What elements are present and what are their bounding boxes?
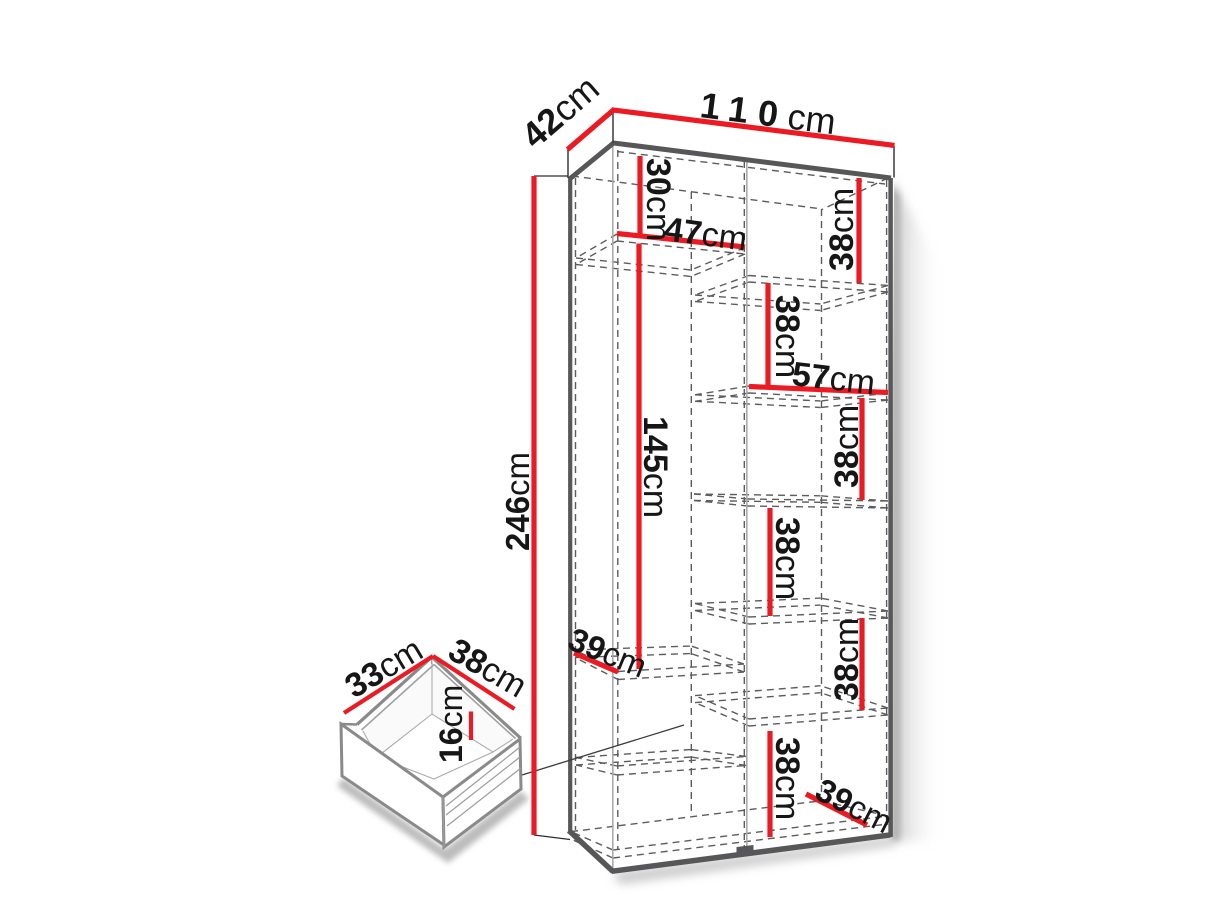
svg-text:38cm: 38cm <box>828 618 866 701</box>
svg-text:38cm: 38cm <box>768 737 806 820</box>
svg-text:38cm: 38cm <box>768 517 806 600</box>
svg-text:246cm: 246cm <box>499 452 536 551</box>
svg-text:16cm: 16cm <box>433 685 469 763</box>
svg-text:38cm: 38cm <box>823 188 861 271</box>
svg-text:145cm: 145cm <box>636 416 674 518</box>
svg-text:38cm: 38cm <box>828 405 866 488</box>
